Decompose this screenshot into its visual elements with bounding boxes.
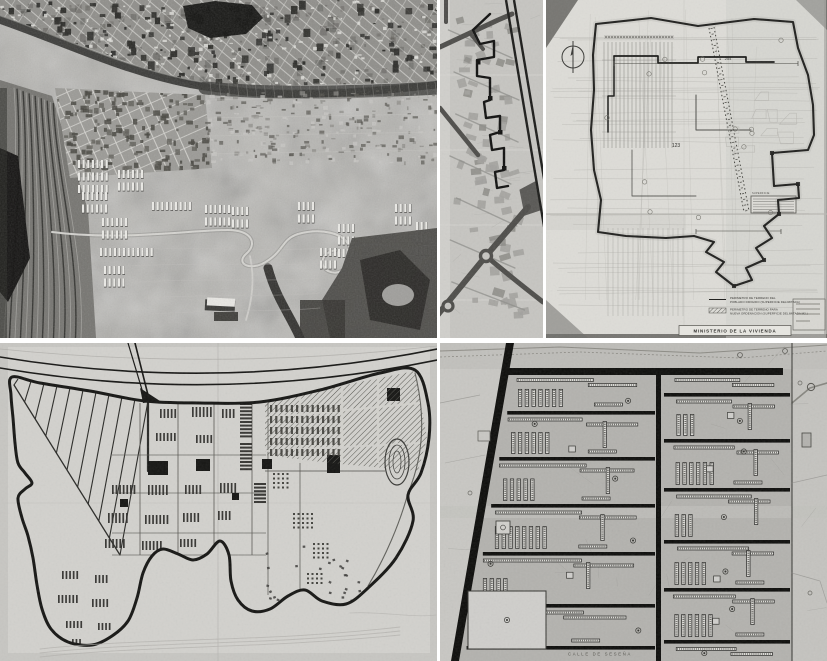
legend-hatch-symbol — [709, 308, 726, 313]
dimension-label-top: 254 — [725, 56, 732, 61]
legend-item2-line2: NUEVA ORDENACION (SUPERFICIE DELIMITADA … — [730, 312, 808, 316]
collage-root: 254 123 SUPERFICIE PERIMETRO DE TERRENO … — [0, 0, 827, 661]
master-plan-image — [0, 343, 437, 661]
panel-aerial-photo — [0, 0, 437, 338]
detail-plan-art — [440, 343, 827, 661]
aerial-photo-art — [0, 0, 437, 338]
street-name-label: CALLE DE SESEÑA — [568, 652, 632, 657]
panel-district-map — [440, 0, 543, 338]
panel-detail-plan: CALLE DE SESEÑA — [440, 343, 827, 661]
legend-item1-line2: POBLADO DIRIGIDO (SUPERFICIE DELIMITADA) — [730, 300, 800, 304]
aerial-photo-image — [0, 0, 437, 338]
district-map-art — [440, 0, 543, 338]
detail-plan-image: CALLE DE SESEÑA — [440, 343, 827, 661]
site-plan-image: 254 123 SUPERFICIE PERIMETRO DE TERRENO … — [546, 0, 827, 338]
ministry-title: MINISTERIO DE LA VIVIENDA — [693, 329, 776, 334]
title-block: MINISTERIO DE LA VIVIENDA — [679, 326, 791, 336]
area-note-label: SUPERFICIE — [752, 191, 770, 195]
plot-number-label: 123 — [672, 143, 681, 149]
panel-master-plan — [0, 343, 437, 661]
district-map-image — [440, 0, 543, 338]
master-plan-art — [0, 343, 437, 661]
panel-site-plan: 254 123 SUPERFICIE PERIMETRO DE TERRENO … — [546, 0, 827, 338]
site-plan-art — [546, 0, 827, 338]
